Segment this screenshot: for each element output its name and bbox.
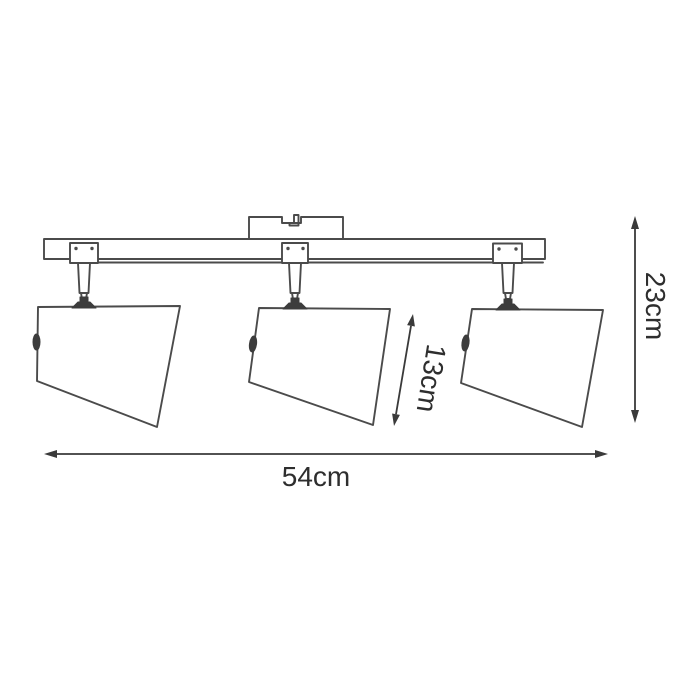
dimension-width-label: 54cm xyxy=(282,461,350,492)
arrowhead-up-icon xyxy=(407,314,415,327)
bracket-middle xyxy=(282,243,308,263)
spotlight-left xyxy=(33,243,180,427)
dimension-shade: 13cm xyxy=(392,314,452,426)
swivel-collar-left xyxy=(80,297,88,302)
bracket-right xyxy=(493,244,522,264)
diagram-canvas: 54cm 23cm 13cm xyxy=(0,0,700,700)
swivel-joint-right xyxy=(496,304,520,310)
swivel-joint-left xyxy=(72,302,96,308)
shade-middle xyxy=(249,308,390,425)
canopy-outline xyxy=(249,217,343,238)
screw-icon xyxy=(514,247,517,250)
shade-knob-left xyxy=(33,334,40,350)
screw-icon xyxy=(301,247,304,250)
stem-right xyxy=(502,263,514,293)
screw-icon xyxy=(286,247,289,250)
dimension-height: 23cm xyxy=(631,216,671,423)
screw-icon xyxy=(497,247,500,250)
screw-icon xyxy=(90,247,93,250)
bracket-left xyxy=(70,243,98,263)
swivel-collar-middle xyxy=(291,298,299,303)
stem-middle xyxy=(289,263,301,293)
stem-left xyxy=(78,263,90,293)
arrowhead-left-icon xyxy=(44,450,57,458)
arrowhead-right-icon xyxy=(595,450,608,458)
spotlight-middle xyxy=(248,243,390,425)
dimension-shade-label: 13cm xyxy=(411,342,452,414)
arrowhead-down-icon xyxy=(631,410,639,423)
dimension-height-label: 23cm xyxy=(640,272,671,340)
spotlight-right xyxy=(461,244,603,428)
shade-left xyxy=(37,306,180,427)
arrowhead-down-icon xyxy=(392,414,400,427)
shade-right xyxy=(461,309,603,427)
swivel-joint-middle xyxy=(283,303,307,309)
swivel-collar-right xyxy=(504,299,512,304)
dimension-shade-line xyxy=(396,326,411,414)
arrowhead-up-icon xyxy=(631,216,639,229)
dimension-width: 54cm xyxy=(44,450,608,492)
screw-icon xyxy=(74,247,77,250)
ceiling-canopy xyxy=(249,215,343,238)
stem-neck-right xyxy=(505,293,511,299)
fixture-dimension-diagram: 54cm 23cm 13cm xyxy=(0,0,700,700)
